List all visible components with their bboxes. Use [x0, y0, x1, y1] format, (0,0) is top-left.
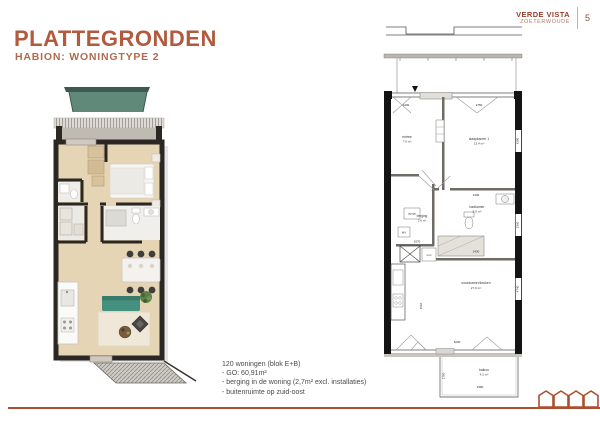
- toilet-room: [58, 182, 80, 202]
- meter-cabinet: [436, 120, 444, 142]
- storage-room: [58, 206, 84, 240]
- room-slaapkamer-area: 13.4 m²: [474, 142, 485, 146]
- specs-item: - GO: 60,91m²: [222, 369, 366, 378]
- dim-balkon-depth: 1750: [442, 372, 446, 379]
- entrance-marker: [412, 86, 418, 92]
- room-balkon-name: balkon: [479, 368, 489, 372]
- dim-living-bottom: 5230: [454, 340, 461, 344]
- dim-badkamer-width: 2190: [473, 193, 480, 197]
- specs-item: - buitenruimte op zuid-oost: [222, 388, 366, 397]
- room-berging-area: 2.6 m²: [418, 219, 427, 223]
- balcony-outline: [440, 357, 518, 397]
- floorplan-technical: WTW MV wm: [376, 16, 528, 422]
- dim-top-left: 1200: [403, 103, 410, 107]
- canopy: [64, 87, 150, 112]
- room-balkon-area: 4.2 m²: [480, 373, 489, 377]
- room-entree-area: 7.9 m²: [403, 140, 412, 144]
- slide-page: PLATTEGRONDEN HABION: WONINGTYPE 2 VERDE…: [0, 0, 600, 422]
- room-berging-name: berging: [417, 214, 428, 218]
- footer-rule: [8, 407, 600, 409]
- room-badkamer-name: badkamer: [469, 205, 485, 209]
- dim-top-right: 2750: [476, 103, 483, 107]
- bathroom: [104, 206, 160, 240]
- pergola-slats: [54, 118, 164, 128]
- houses-logo-icon: [538, 390, 600, 408]
- specs-item: - berging in de woning (2,7m² excl. inst…: [222, 378, 366, 387]
- wtw-label: WTW: [408, 212, 416, 216]
- dim-bedroom-right: 4200: [516, 137, 520, 144]
- page-subtitle: HABION: WONINGTYPE 2: [15, 51, 159, 63]
- page-number: 5: [585, 13, 592, 23]
- room-slaapkamer-name: slaapkamer 1: [469, 137, 489, 141]
- brand-divider: [577, 7, 578, 29]
- room-badkamer-area: 5.0 m²: [473, 210, 482, 214]
- room-woonkamer-name: woonkamer/keuken: [461, 281, 491, 285]
- floorplan-render-3d: [46, 84, 208, 396]
- dim-badkamer-right: 2360: [516, 221, 520, 228]
- kitchen-counter: [58, 282, 78, 344]
- wm-label: wm: [427, 253, 432, 257]
- facade-top: [384, 86, 522, 113]
- dim-living-right: 4740: [516, 285, 520, 292]
- kitchen-counter-plan: [391, 264, 405, 320]
- mv-label: MV: [402, 231, 407, 235]
- bathroom-fixtures: [438, 194, 514, 256]
- room-entree-name: entree: [402, 135, 412, 139]
- dim-badkamer-bottom: 2430: [473, 250, 480, 254]
- gallery-slab: [384, 54, 522, 93]
- facade-bottom: [384, 335, 522, 357]
- room-woonkamer-area: 27.9 m²: [471, 286, 482, 290]
- gallery-structure: [386, 27, 522, 35]
- specs-notes: 120 woningen (blok E+B) - GO: 60,91m² - …: [222, 360, 366, 397]
- dim-living-left: 4510: [419, 302, 423, 309]
- specs-heading: 120 woningen (blok E+B): [222, 360, 366, 369]
- dim-berging-width: 1070: [414, 240, 421, 244]
- living-furniture: [98, 291, 152, 346]
- page-title: PLATTEGRONDEN: [14, 26, 217, 52]
- dim-balkon-width: 2380: [477, 385, 484, 389]
